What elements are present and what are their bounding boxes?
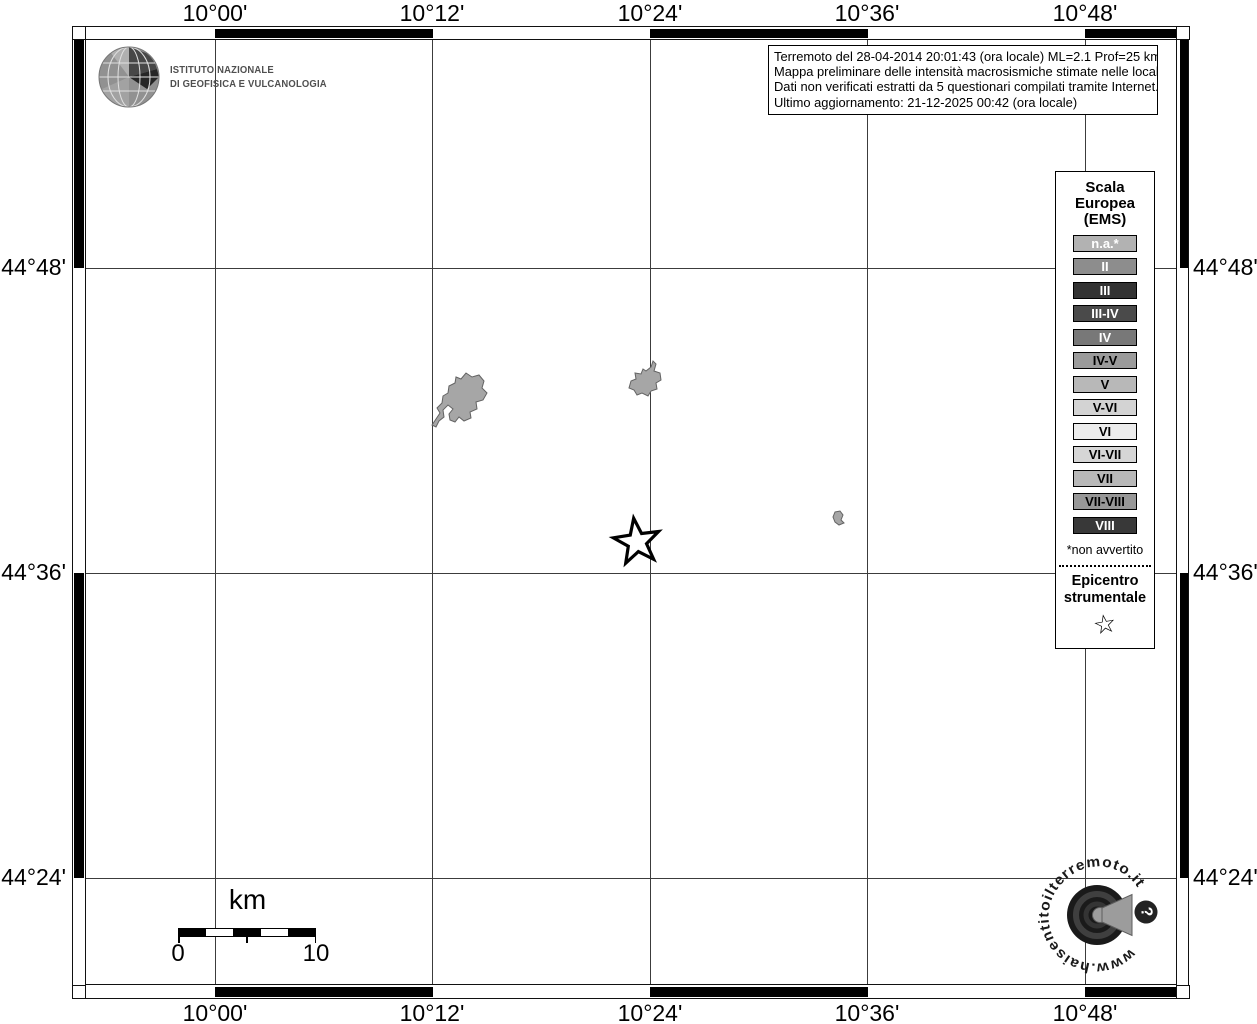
seismograph-disc-icon (1067, 885, 1132, 945)
locality-shape-west (432, 373, 487, 427)
frame-corner (72, 985, 86, 999)
epicenter-legend-title: strumentale (1056, 590, 1154, 607)
lon-label-bottom: 10°24' (580, 1000, 720, 1024)
legend-chip-viii: VIII (1073, 517, 1137, 534)
lon-label-bottom: 10°00' (145, 1000, 285, 1024)
scalebar-end-label: 10 (298, 940, 334, 968)
locality-shape-east (833, 511, 844, 525)
lat-label-left: 44°48' (0, 254, 66, 281)
scalebar-tick (246, 936, 248, 943)
frame-corner (1176, 26, 1190, 40)
scalebar-start-label: 0 (163, 940, 193, 968)
map-features-layer (85, 39, 1177, 985)
lon-label-bottom: 10°36' (797, 1000, 937, 1024)
ems-scale-legend: Scala Europea (EMS) n.a.* II III III-IV … (1055, 171, 1155, 649)
info-line-event: Terremoto del 28-04-2014 20:01:43 (ora l… (774, 49, 1152, 64)
epicenter-legend-star-icon: ☆ (1091, 608, 1119, 640)
info-line-updated: Ultimo aggiornamento: 21-12-2025 00:42 (… (774, 95, 1152, 110)
ingv-line2: DI GEOFISICA E VULCANOLOGIA (170, 78, 327, 92)
macroseismic-map-page: 10°00' 10°12' 10°24' 10°36' 10°48' 10°00… (0, 0, 1257, 1024)
ingv-globe-logo (97, 45, 161, 109)
ingv-wordmark: ISTITUTO NAZIONALE DI GEOFISICA E VULCAN… (170, 64, 327, 91)
legend-chip-vii-viii: VII-VIII (1073, 493, 1137, 510)
legend-footnote: *non avvertito (1056, 543, 1154, 557)
legend-title-line: (EMS) (1056, 212, 1154, 228)
legend-chip-vi-vii: VI-VII (1073, 446, 1137, 463)
haisentitoilterremoto-logo: www.haisentitoilterremoto.it ? (1028, 846, 1170, 988)
earthquake-info-box: Terremoto del 28-04-2014 20:01:43 (ora l… (768, 45, 1158, 115)
ingv-line1: ISTITUTO NAZIONALE (170, 64, 327, 78)
scalebar-unit-label: km (205, 884, 290, 916)
legend-chip-v: V (1073, 376, 1137, 393)
legend-title-line: Europea (1056, 196, 1154, 212)
legend-chip-iv-v: IV-V (1073, 352, 1137, 369)
lon-label-bottom: 10°48' (1015, 1000, 1155, 1024)
info-line-data-source: Dati non verificati estratti da 5 questi… (774, 79, 1152, 94)
lat-label-left: 44°24' (0, 864, 66, 891)
lon-label-top: 10°36' (797, 0, 937, 27)
lon-label-bottom: 10°12' (362, 1000, 502, 1024)
legend-chip-iii: III (1073, 282, 1137, 299)
epicenter-legend-title: Epicentro (1056, 573, 1154, 590)
epicenter-star-icon (611, 515, 662, 564)
lat-label-left: 44°36' (0, 559, 66, 586)
lat-label-right: 44°36' (1193, 559, 1257, 586)
lon-label-top: 10°24' (580, 0, 720, 27)
question-badge-icon: ? (1133, 899, 1160, 926)
locality-shape-central (629, 361, 661, 396)
legend-chip-ii: II (1073, 258, 1137, 275)
lon-label-top: 10°00' (145, 0, 285, 27)
legend-chip-iv: IV (1073, 329, 1137, 346)
legend-title-line: Scala (1056, 180, 1154, 196)
lat-label-right: 44°48' (1193, 254, 1257, 281)
legend-divider (1059, 565, 1151, 567)
frame-corner (72, 26, 86, 40)
lat-label-right: 44°24' (1193, 864, 1257, 891)
legend-chip-iii-iv: III-IV (1073, 305, 1137, 322)
info-line-map-type: Mappa preliminare delle intensità macros… (774, 64, 1152, 79)
legend-chip-vi: VI (1073, 423, 1137, 440)
legend-chip-na: n.a.* (1073, 235, 1137, 252)
lon-label-top: 10°48' (1015, 0, 1155, 27)
lon-label-top: 10°12' (362, 0, 502, 27)
frame-corner (1176, 985, 1190, 999)
legend-chip-v-vi: V-VI (1073, 399, 1137, 416)
legend-chip-vii: VII (1073, 470, 1137, 487)
